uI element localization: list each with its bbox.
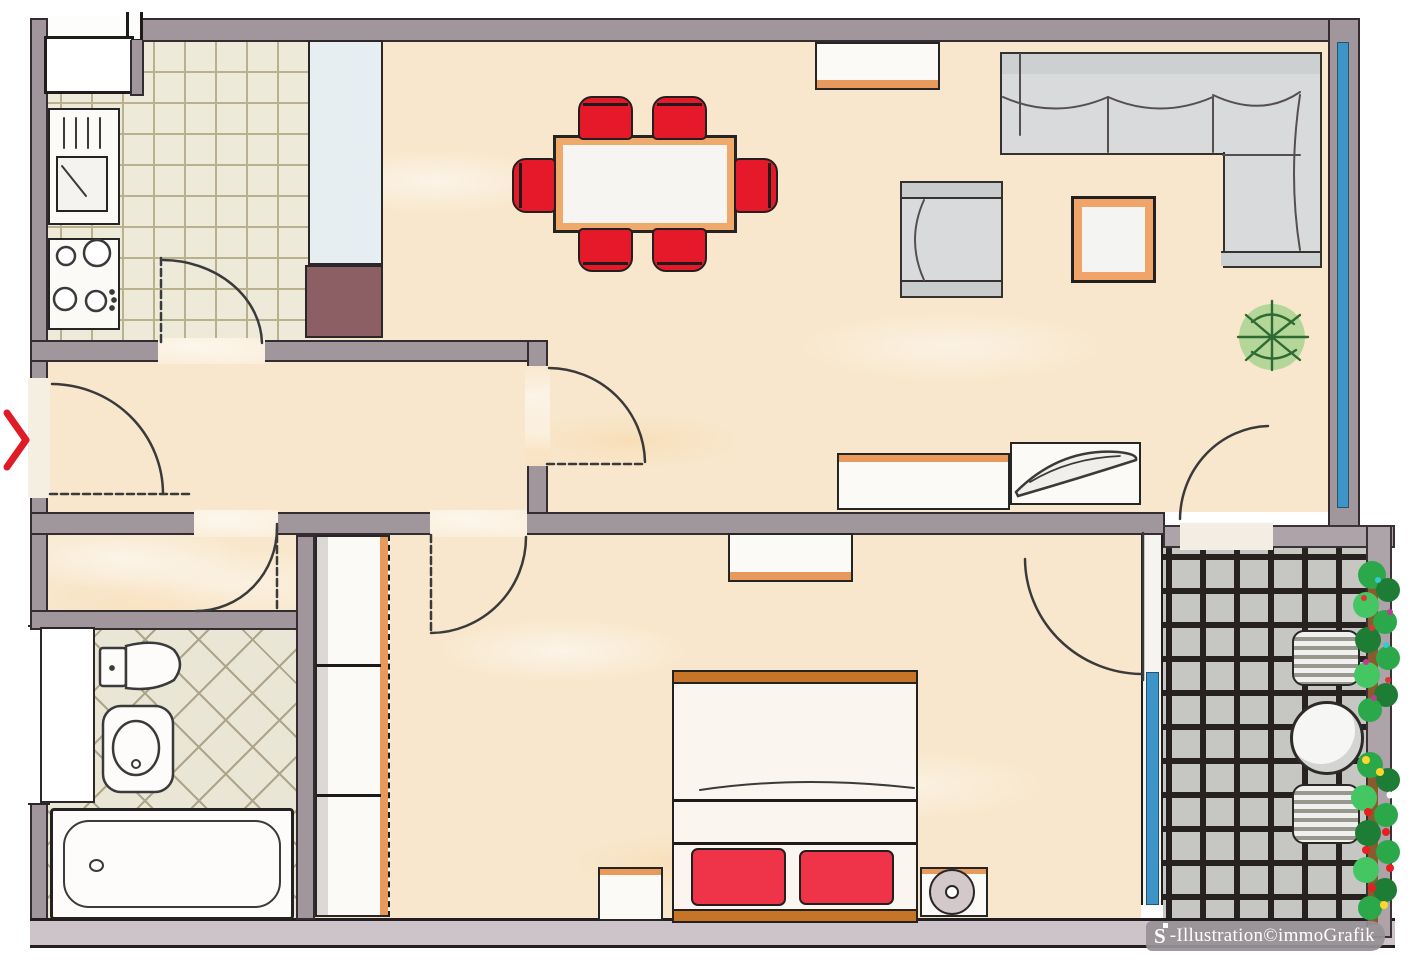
watermark-text: -Illustration©immoGrafik [1170,925,1375,947]
living-balcony-door-swing [1180,426,1268,519]
sofa-cushion-lines [1003,54,1300,250]
decor-paddle [1016,452,1136,496]
vestibule-door-swing [196,524,277,612]
floor-plan: S -Illustration©immoGrafik [0,0,1411,960]
bed-duvet-fold [700,782,914,790]
stove-burners [54,240,116,311]
watermark: S -Illustration©immoGrafik [1146,921,1385,951]
kitchen-sink-drainer [62,118,100,196]
washbasin [103,706,173,792]
faucet-line [62,166,86,196]
hall-living-door-swing [547,368,646,464]
sketch-overlay [0,0,1411,960]
toilet [100,643,180,689]
potted-plant [1238,301,1308,370]
entrance-arrow-icon [7,413,26,467]
balcony-plant-bottom [1351,752,1400,925]
entrance-door-swing [50,384,192,494]
watermark-logo-icon: S [1154,926,1166,946]
bedroom-door-swing [431,535,526,634]
bedroom-balcony-door-swing [1025,533,1143,680]
balcony-plant-top [1353,561,1400,722]
kitchen-door-swing [161,258,262,344]
armchair-back-curve [915,200,924,280]
